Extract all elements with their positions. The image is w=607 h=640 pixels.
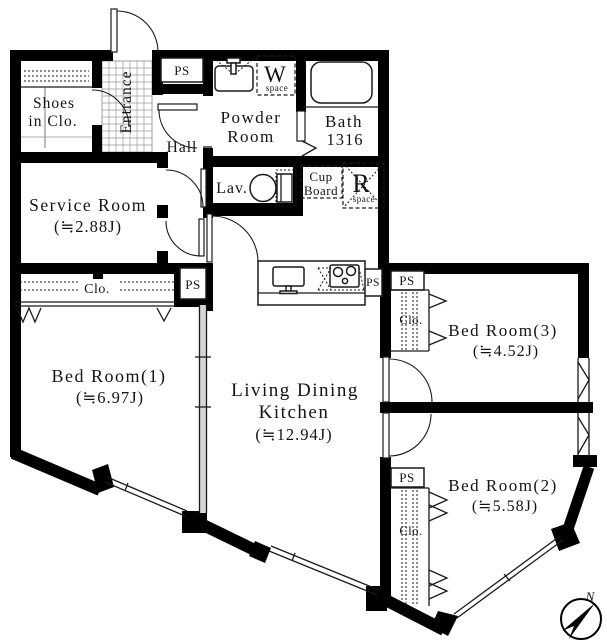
cupboard-label-2: Board [304,183,338,198]
closet-label-bed2: Clo. [399,524,422,538]
room-label-bed2: Bed Room(2) [448,476,558,495]
room-label-bed1: Bed Room(1) [52,366,167,387]
room-label-bath-size: 1316 [327,130,364,149]
room-label-powder-2: Room [227,127,275,146]
room-label-shoes-1: Shoes [33,95,75,112]
room-label-powder-1: Powder [221,108,282,127]
room-label-ldk-2: Kitchen [259,402,330,423]
room-area-bed1: (≒6.97J) [76,388,144,407]
service-room-door-upper [166,169,206,207]
wall-east-upper [378,50,389,273]
room-label-bath: Bath [325,112,363,131]
ldk-entry-door [207,214,258,262]
kitchen-counter [258,261,365,305]
bath-folding-door [297,111,316,156]
room-label-ldk-1: Living Dining [231,380,359,401]
ps-label-bed3: PS [399,273,414,288]
toilet-icon [250,170,296,206]
wall-west [10,50,21,457]
ps-label-kitchen: PS [366,277,380,289]
room-label-hall: Hall [167,139,198,156]
washbasin-icon [215,58,253,91]
closet-door-mark-right [157,308,171,321]
window-bed2-southeast [454,536,563,618]
compass-icon [561,599,601,639]
room-area-service: (≒2.88J) [54,217,122,236]
room-label-bed3: Bed Room(3) [448,321,558,340]
floor-plan-page: Shoes in Clo. Entrance Hall PS Powder Ro… [0,0,607,640]
bath-fixtures [303,62,378,107]
wall-bed3-right [578,263,589,358]
room-area-bed2: (≒5.58J) [472,498,538,515]
bed2-door [383,413,431,458]
room-label-service: Service Room [29,195,147,215]
bed3-door [383,357,432,402]
service-room-door-lower [166,219,204,256]
bathtub-icon [311,62,372,103]
window-bed2-east [578,413,589,457]
closet-bed2 [391,488,447,606]
room-label-entrance: Entrance [118,70,135,133]
window-bed3-east [578,358,589,402]
entrance-door [111,9,158,52]
room-label-lav: Lav. [216,180,248,197]
wspace-sub: space [266,83,289,93]
window-ldk-south [269,546,379,595]
closet-label-west: Clo. [84,282,110,297]
floor-plan-svg: Shoes in Clo. Entrance Hall PS Powder Ro… [0,0,607,640]
ps-label-bed2: PS [399,470,414,485]
wall-bed1-diagonal [13,453,100,490]
room-area-ldk: (≒12.94J) [255,425,332,444]
ps-label-closet: PS [185,277,200,292]
closet-label-bed3: Clo. [399,313,422,327]
room-area-bed3: (≒4.52J) [473,343,539,360]
north-label: N [585,589,596,604]
wall-bed3-bottom [380,402,593,413]
window-bed1-southwest [105,477,187,516]
ps-label-hall: PS [174,63,189,78]
cupboard-label-1: Cup [309,169,332,184]
partition-bed1-ldk [195,305,211,513]
room-label-shoes-2: in Clo. [28,113,77,130]
rspace-sub: space [353,194,376,204]
